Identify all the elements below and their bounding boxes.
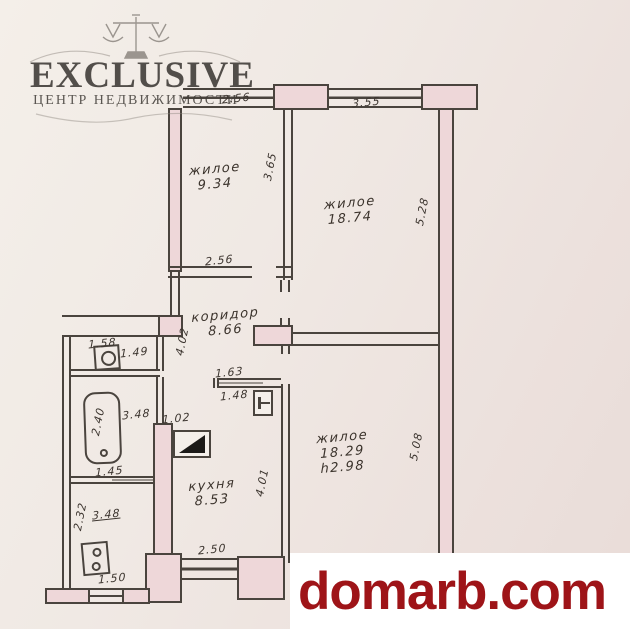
window-pantry [90,588,122,604]
wall-bottom-left-a [45,588,90,604]
pier-top-right [421,84,478,110]
wall-bottom-L [145,553,182,603]
wall-room1-room2 [283,108,293,280]
dimension-label: 5.08 [407,431,425,462]
wall-corridor-room3-b [281,384,290,563]
agency-tagline: ЦЕНТР НЕДВИЖИМОСТИ [30,93,242,109]
wall-bottom-left-b [122,588,150,604]
dimension-label: 4.01 [253,467,271,498]
wall-mid-pink [153,423,173,563]
wall-room1-bottom-stub [276,266,293,278]
floorplan-photo: жилое9.34 жилое18.74 коридор8.66 жилое18… [0,0,630,629]
dimension-label: 1.02 [162,410,190,426]
wall-right-outer [438,108,454,564]
wall-room2-room3 [293,332,438,346]
dimension-label: 1.49 [120,344,148,360]
wall-wc-right [156,337,164,371]
water-heater-icon [253,390,273,416]
dimension-label: 3.55 [352,94,380,110]
dimension-label: 2.32 [71,501,89,532]
dimension-label: 1.50 [98,570,126,586]
wall-corridor-room3-a [281,346,290,354]
wall-hatch-end [263,378,281,388]
wall-entry [170,272,180,317]
wall-corridor-room2-a [280,280,290,292]
agency-name: EXCLUSIVE [30,54,242,97]
pier-top-center [273,84,329,110]
window-hatch [219,378,263,388]
dimension-label: 3.48 [122,406,150,422]
kitchen-label: кухня8.53 [172,474,252,511]
window-kitchen [182,558,237,580]
dimension-label: 5.28 [413,196,431,227]
room1-label: жилое9.34 [175,158,255,195]
wall-hall [62,315,162,337]
room2-label: жилое18.74 [305,192,395,230]
vent-shaft-icon [173,430,211,458]
site-name: domarb.com [290,561,606,622]
dimension-label: 3.65 [261,151,279,182]
agency-watermark: EXCLUSIVE ЦЕНТР НЕДВИЖИМОСТИ [22,6,247,126]
site-watermark: domarb.com [290,553,630,629]
dimension-label: 1.48 [220,387,248,403]
flourish-icon [32,110,237,128]
wall-wc-bath [70,369,160,377]
room3-label: жилое18.29h2.98 [300,426,385,479]
window-bath-pantry [112,476,158,484]
pier-bottom [237,556,285,600]
stove-icon [81,541,111,576]
dimension-label: 2.50 [198,541,226,557]
dimension-label: 3.48 [92,506,120,522]
